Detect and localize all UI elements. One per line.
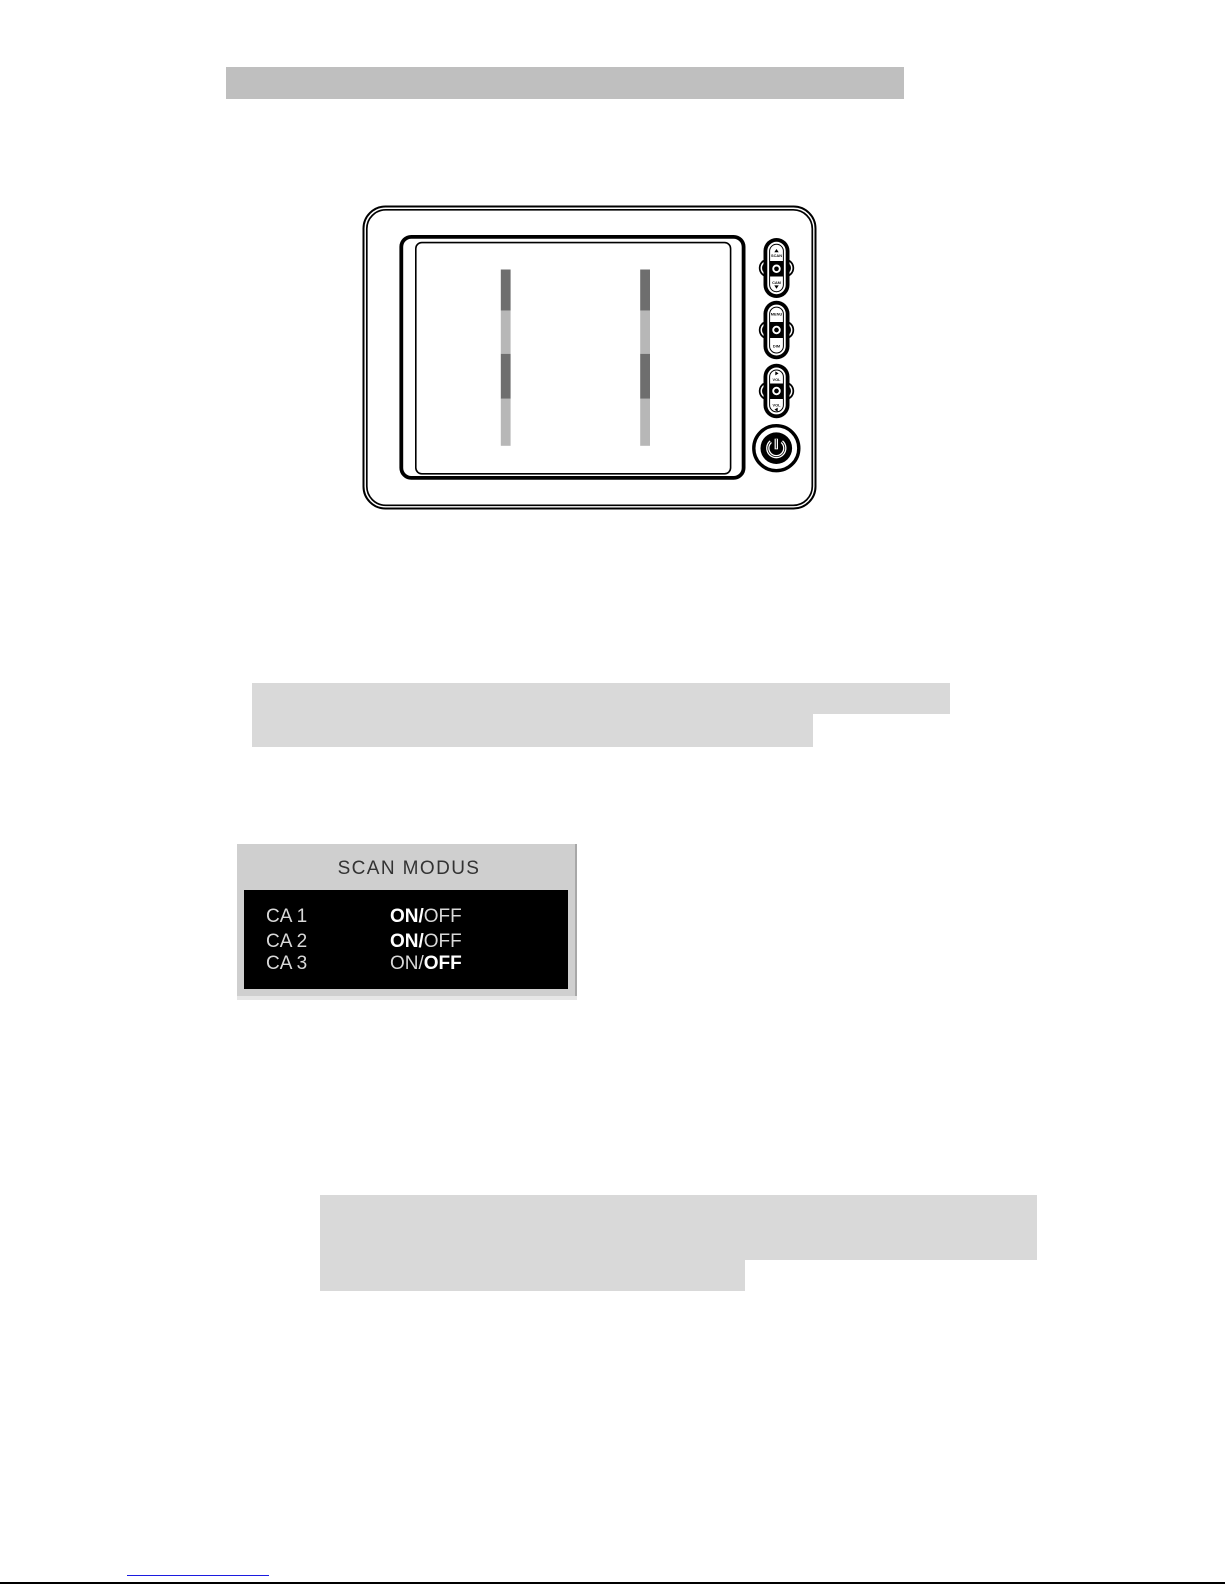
svg-text:MENU: MENU <box>771 312 783 317</box>
svg-text:VOL: VOL <box>773 402 782 407</box>
svg-text:CAM: CAM <box>772 280 781 285</box>
svg-text:DIM: DIM <box>773 344 780 349</box>
svg-text:VOL: VOL <box>773 377 782 382</box>
svg-text:SCAN: SCAN <box>771 253 782 258</box>
